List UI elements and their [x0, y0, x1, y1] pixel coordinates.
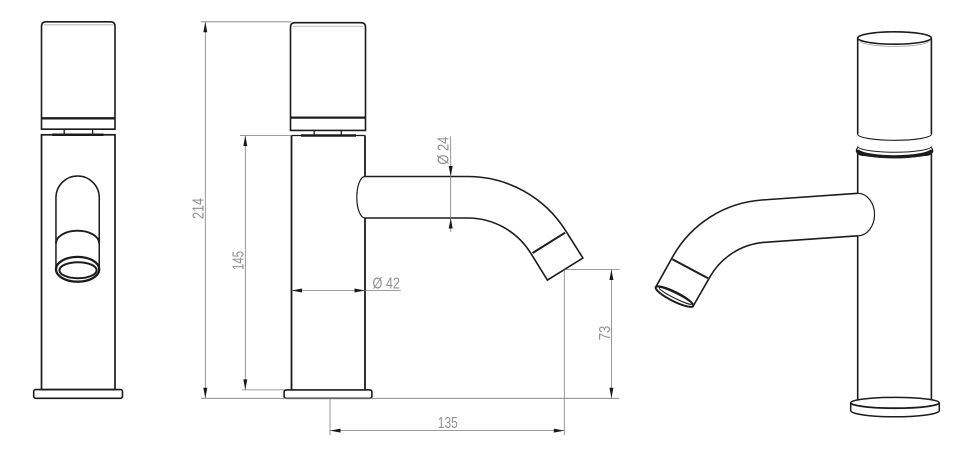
svg-text:214: 214 — [190, 198, 207, 219]
svg-text:135: 135 — [438, 415, 458, 432]
svg-text:Ø 42: Ø 42 — [372, 275, 400, 292]
svg-text:73: 73 — [597, 326, 614, 341]
svg-text:Ø 24: Ø 24 — [436, 136, 453, 164]
svg-text:145: 145 — [230, 251, 247, 270]
